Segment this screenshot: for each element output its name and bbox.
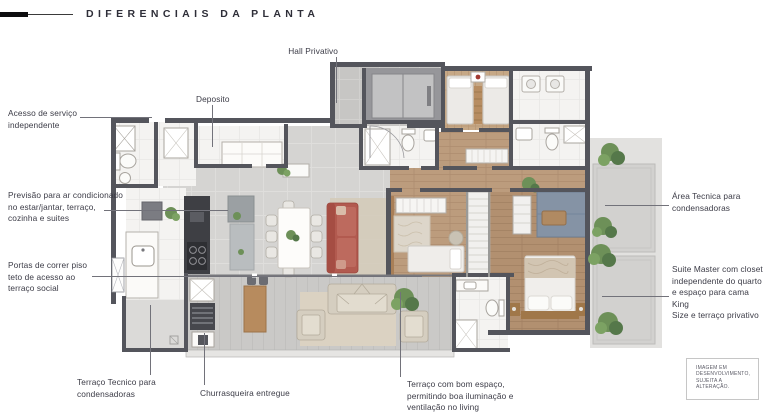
leader-area-tecnica <box>605 205 669 206</box>
leader-hall-privativo <box>336 57 337 103</box>
label-area-tecnica: Área Tecnica para condensadoras <box>672 191 740 214</box>
label-acesso-servico: Acesso de serviço independente <box>8 108 77 131</box>
label-churrasqueira: Churrasqueira entregue <box>200 388 290 400</box>
title-rule <box>28 14 73 15</box>
service-room <box>164 128 188 158</box>
label-deposito: Deposito <box>196 94 230 106</box>
deposito-closet <box>222 142 282 167</box>
leader-acesso-servico <box>80 117 152 118</box>
label-previsao-ar: Previsão para ar condicionado no estar/j… <box>8 190 123 225</box>
label-terraco-living: Terraço com bom espaço, permitindo boa i… <box>407 379 513 414</box>
label-terraco-tecnico: Terraço Tecnico para condensadoras <box>77 377 156 400</box>
label-suite-master: Suite Master com closet independente do … <box>672 264 768 322</box>
master-closet <box>468 192 490 276</box>
leader-terraco-living <box>400 292 401 377</box>
label-hall-privativo: Hall Privativo <box>252 46 338 58</box>
churrasqueira <box>190 279 215 347</box>
leader-suite-master <box>602 296 669 297</box>
leader-portas-correr <box>92 276 422 277</box>
leader-churrasqueira <box>204 333 205 385</box>
page: { "title": "DIFERENCIAIS DA PLANTA", "la… <box>0 0 768 414</box>
title-accent-bar <box>0 12 28 17</box>
page-title: DIFERENCIAIS DA PLANTA <box>86 8 319 20</box>
leader-deposito <box>212 105 213 147</box>
label-portas-correr: Portas de correr piso teto de acesso ao … <box>8 260 87 295</box>
leader-previsao-ar <box>104 210 228 211</box>
elevator <box>364 68 442 124</box>
leader-terraco-tecnico <box>150 305 151 375</box>
twin-bedroom <box>447 72 509 124</box>
disclaimer-note: IMAGEM EM DESENVOLVIMENTO, SUJEITA A ALT… <box>686 358 759 400</box>
